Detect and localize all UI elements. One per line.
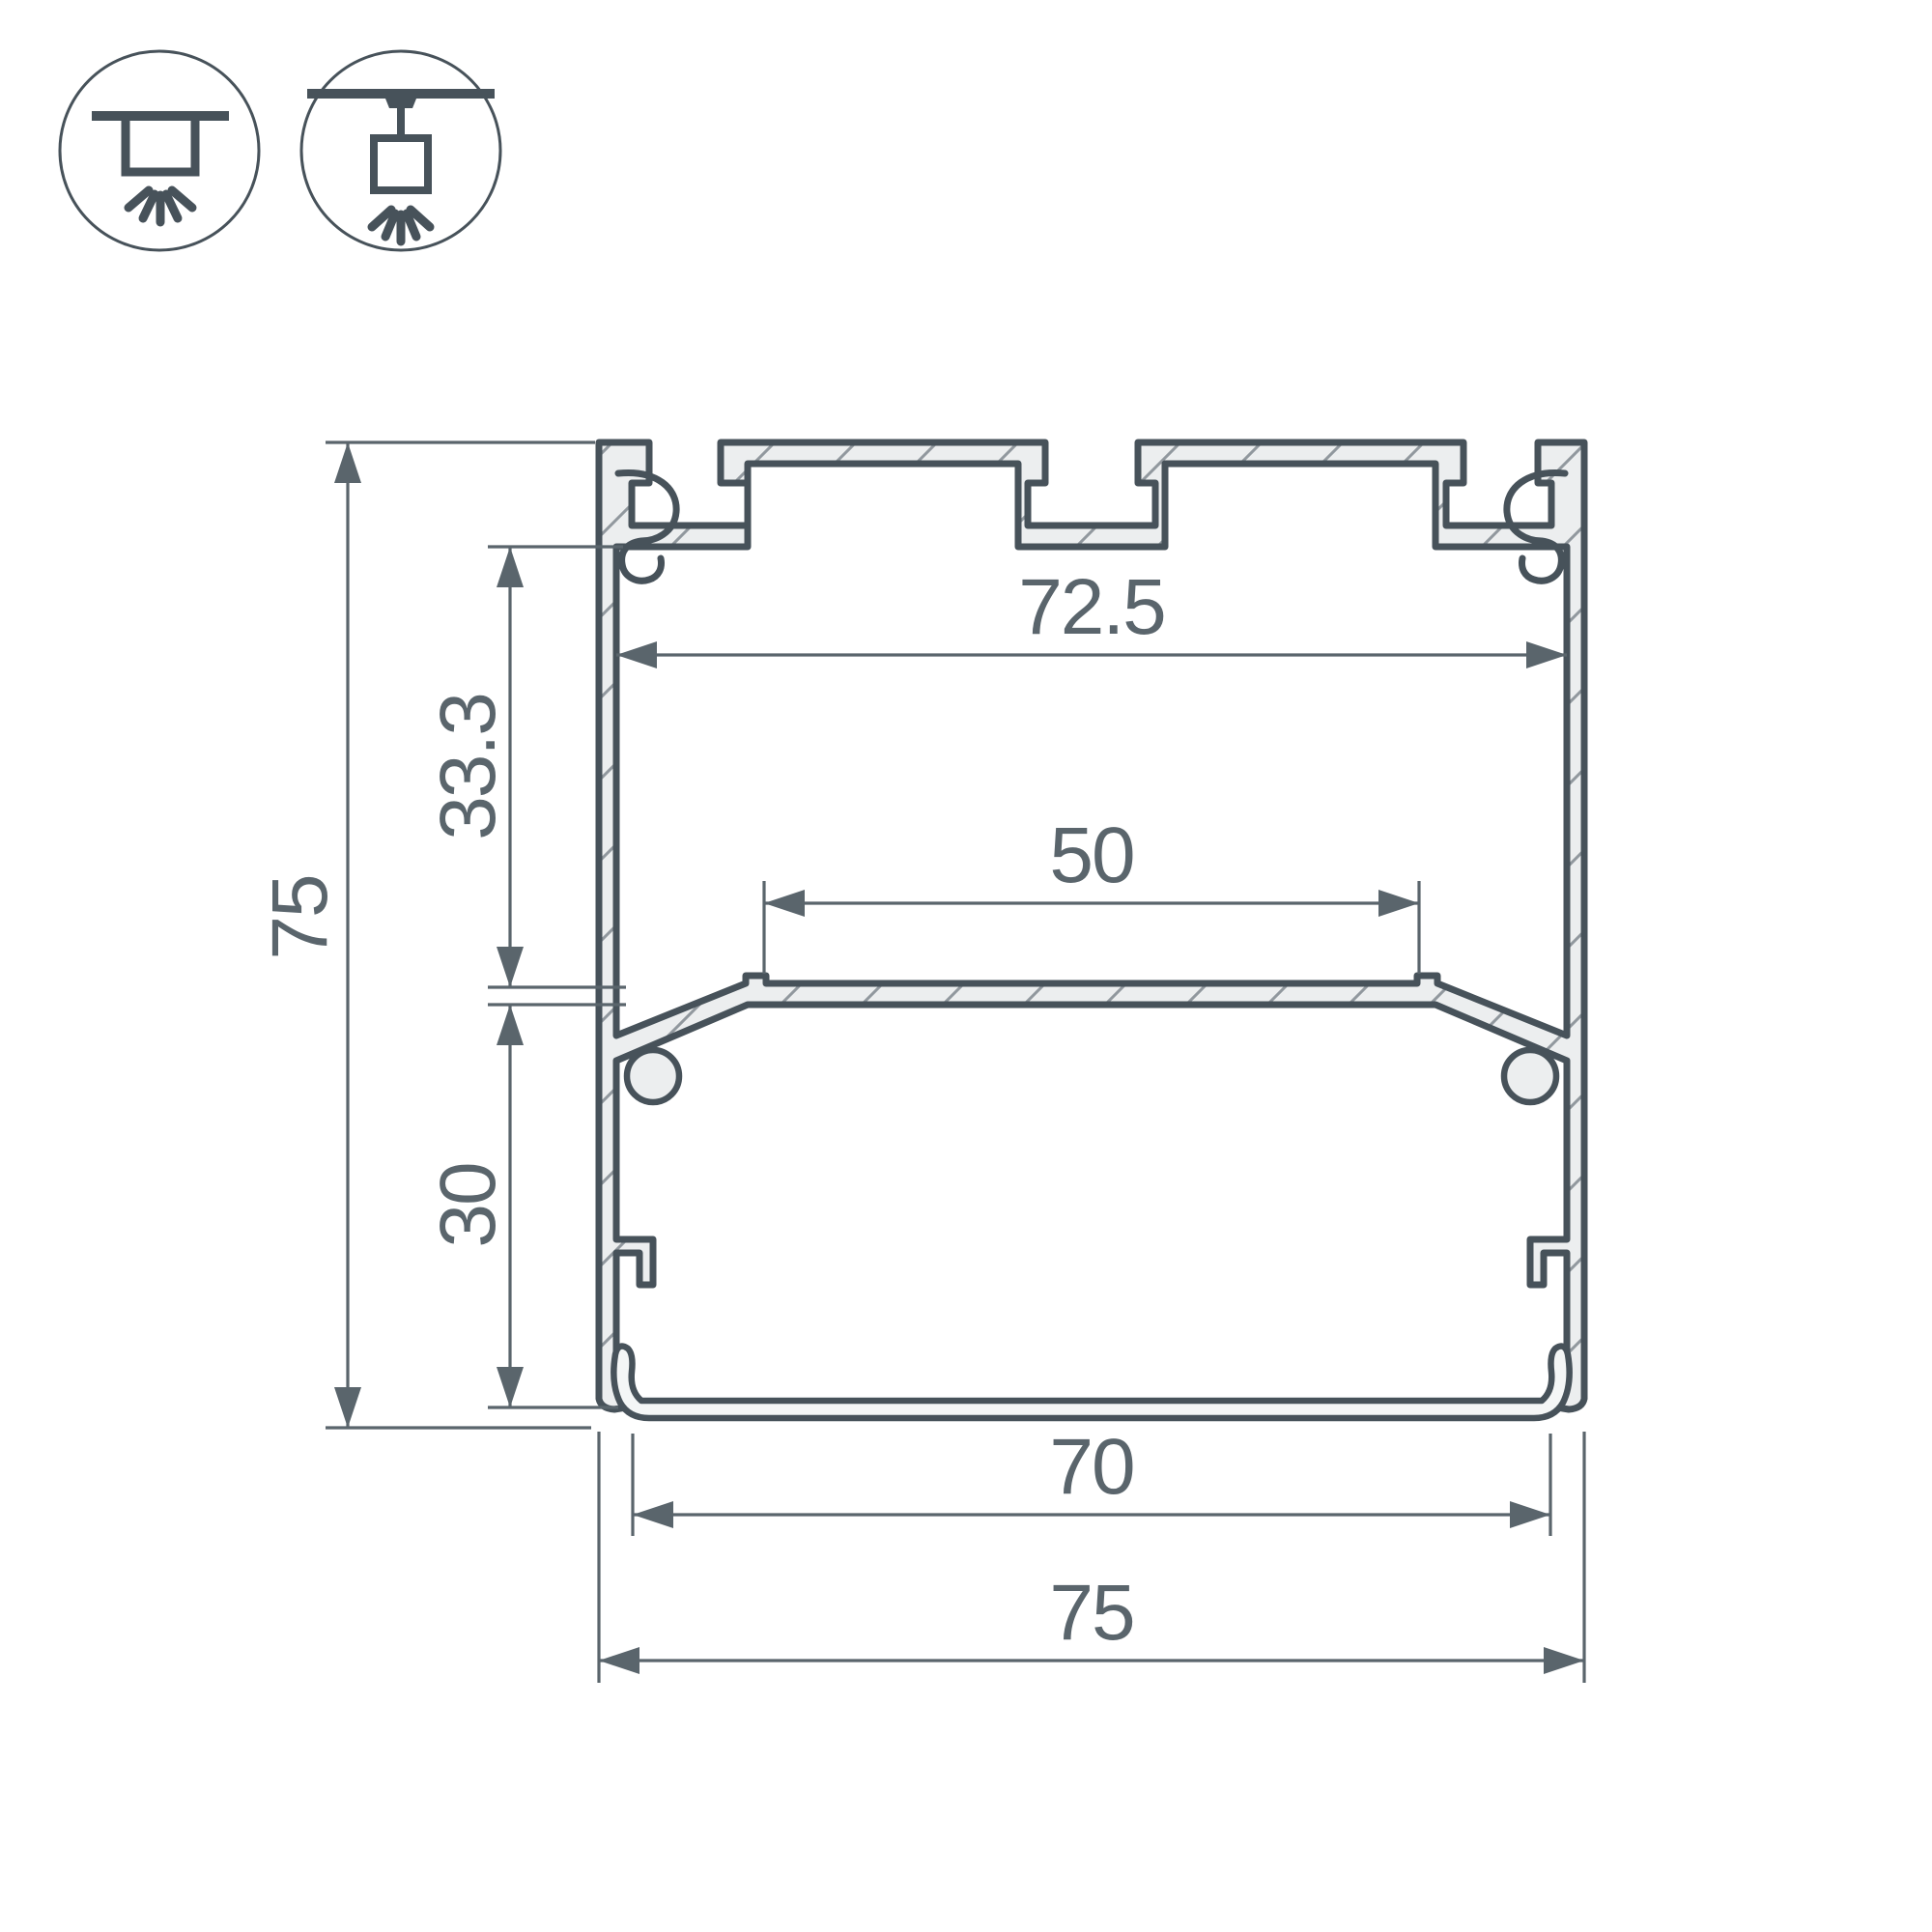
profile-drawing-svg: 72.5 50 33.3 30 — [0, 0, 1932, 1932]
screw-boss-mid-right-icon — [1504, 1050, 1556, 1102]
dim-led-platform-width-value: 50 — [1049, 811, 1133, 899]
background — [0, 0, 1932, 1932]
dim-total-height-value: 75 — [256, 875, 344, 959]
dim-upper-section-height-value: 33.3 — [424, 694, 512, 840]
screw-boss-mid-left-icon — [627, 1050, 679, 1102]
dim-inner-top-width-value: 72.5 — [1018, 563, 1165, 651]
dim-lower-section-height-value: 30 — [424, 1163, 512, 1247]
drawing-canvas: 72.5 50 33.3 30 — [0, 0, 1932, 1932]
dim-bottom-opening-width-value: 70 — [1049, 1423, 1133, 1511]
dim-total-width-value: 75 — [1049, 1569, 1133, 1657]
